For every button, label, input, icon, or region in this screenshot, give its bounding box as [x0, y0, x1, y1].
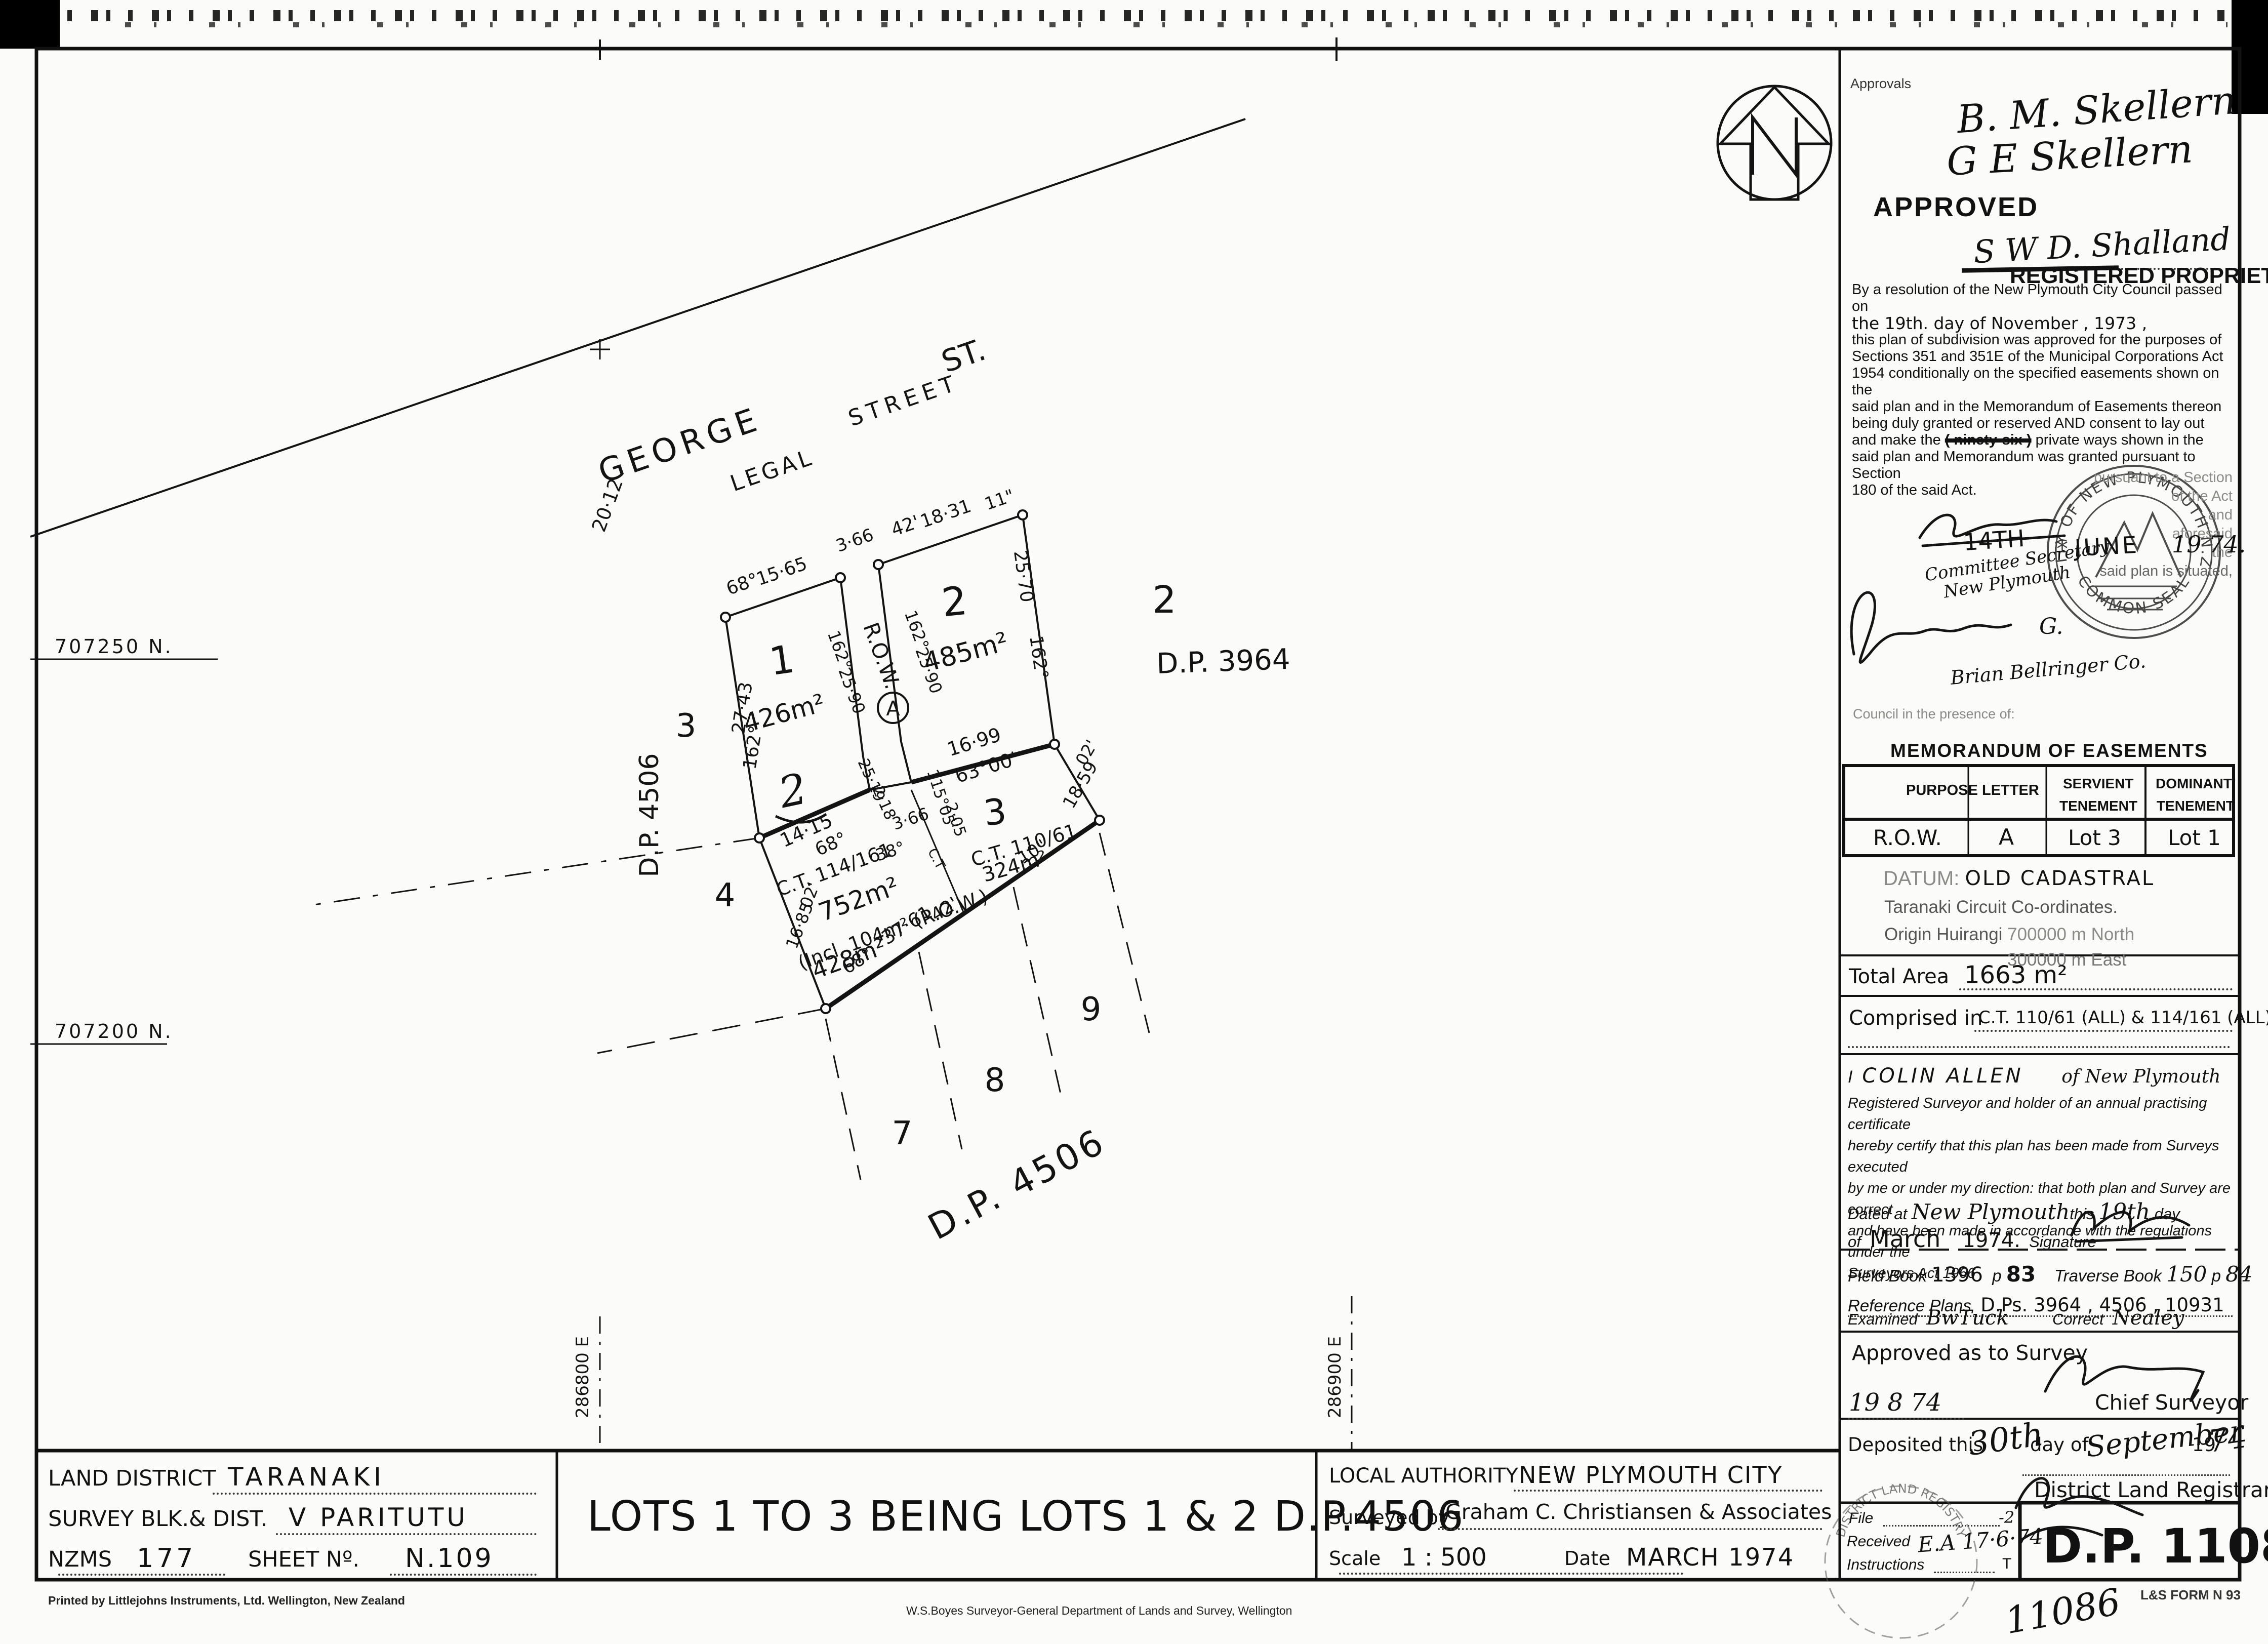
cert-month: March — [1870, 1225, 1940, 1253]
lot1-hand-2: 2 — [774, 764, 812, 818]
cert-dated-at: Dated at — [1848, 1205, 1907, 1223]
fb-p-label: p — [1992, 1266, 2001, 1285]
faint-f3: and — [2005, 506, 2233, 525]
district-land-registrar-label: District Land Registrar — [2034, 1477, 2268, 1502]
deposited-pre: Deposited this — [1848, 1434, 1983, 1456]
land-district-value: TARANAKI — [228, 1462, 385, 1492]
cert-month-line: of March 1974. Signature — [1848, 1225, 2096, 1253]
sheet-dots — [390, 1574, 537, 1576]
datum-origin-north: 700000 m North — [2007, 925, 2134, 944]
memorandum-title: MEMORANDUM OF EASEMENTS — [1890, 740, 2208, 761]
faint-f2: of the Act — [2005, 487, 2233, 506]
resolution-l5: 1954 conditionally on the specified ease… — [1852, 365, 2237, 398]
cert-year: 1974. — [1962, 1229, 2020, 1252]
correct-name: Nealey — [2113, 1306, 2184, 1330]
dim-front-sec: 11" — [982, 486, 1017, 514]
file-mark-2: -2 — [1999, 1508, 2014, 1527]
resolution-l8: and make the ( ninety-six ) private ways… — [1852, 432, 2237, 449]
deposited-year-script: 74 — [2206, 1419, 2249, 1460]
coord-e2: 286900 E — [1325, 1336, 1345, 1418]
cert-surveyor-name: COLIN ALLEN — [1862, 1064, 2023, 1088]
approvals-label: Approvals — [1850, 76, 1911, 92]
adj-lot4: 4 — [715, 877, 736, 914]
examined-line: Examined BwTuck Correct Nealey — [1848, 1306, 2184, 1330]
memo-h-dominant1: DOMINANT — [2156, 776, 2232, 792]
traverse-book-label: Traverse Book — [2054, 1266, 2162, 1285]
fb-p-value: 83 — [2006, 1262, 2036, 1287]
survey-blk-value: V PARITUTU — [289, 1503, 468, 1532]
street-width: 20·12 — [588, 475, 628, 535]
surveyed-by-value: Graham C. Christiansen & Associates — [1445, 1500, 1832, 1524]
lot2-area: 485m² — [920, 627, 1011, 678]
cert-i: I — [1848, 1067, 1852, 1087]
adj-dp3964-lot: 2 — [1152, 578, 1176, 622]
street-name-street: STREET — [845, 370, 962, 431]
resolution-paragraph: By a resolution of the New Plymouth City… — [1852, 282, 2237, 499]
local-authority-value: NEW PLYMOUTH CITY — [1519, 1461, 1783, 1489]
edgar-initial: G. — [2039, 614, 2063, 639]
date-label: Date — [1564, 1547, 1610, 1570]
resolution-l8b-struck: ( ninety-six ) — [1945, 432, 2032, 448]
cert-l1: Registered Surveyor and holder of an ann… — [1848, 1093, 2238, 1135]
approved-heading: APPROVED — [1873, 191, 2039, 223]
form-reference: L&S FORM N 93 — [2140, 1587, 2241, 1603]
datum-line2: Taranaki Circuit Co-ordinates. — [1884, 897, 2118, 917]
survey-approval-date: 19 8 74 — [1849, 1388, 1941, 1417]
total-area-value: 1663 m² — [1964, 961, 2067, 989]
cert-dated-line: Dated at New Plymouththis 19th day — [1848, 1199, 2180, 1225]
lot2-number: 2 — [940, 578, 969, 626]
datum-line1: DATUM: OLD CADASTRAL — [1883, 867, 2155, 890]
survey-blk-dots — [276, 1533, 537, 1535]
seal-date-year: 19 74. — [2172, 531, 2246, 558]
row-left-dist: 25·90 — [834, 665, 869, 716]
chief-surveyor-label: Chief Surveyor — [2095, 1390, 2248, 1415]
comprised-label: Comprised in — [1849, 1007, 1982, 1030]
comprised-value: C.T. 110/61 (ALL) & 114/161 (ALL) — [1978, 1008, 2268, 1028]
survey-blk-label: SURVEY BLK.& DIST. — [48, 1506, 267, 1532]
resolution-l8c: private ways shown in the — [2032, 432, 2204, 448]
resolution-l1: By a resolution of the New Plymouth City… — [1852, 282, 2237, 315]
coord-n2: 707200 N. — [55, 1020, 173, 1042]
scale-dots — [1339, 1573, 1683, 1575]
surveyed-by-label: Surveyed by — [1329, 1506, 1449, 1529]
datum-origin-label: Origin Huirangi — [1884, 925, 2002, 944]
traverse-book-value: 150 — [2166, 1262, 2207, 1287]
adj-lot9: 9 — [1081, 991, 1102, 1028]
memo-h-dominant2: TENEMENT — [2157, 798, 2235, 814]
resolution-l3: this plan of subdivision was approved fo… — [1852, 332, 2237, 348]
resolution-l8a: and make the — [1852, 432, 1945, 448]
survey-date-dots — [1848, 1418, 1964, 1420]
coord-n1: 707250 N. — [55, 635, 173, 658]
memo-h-servient1: SERVIENT — [2063, 776, 2134, 792]
cert-of: of — [1848, 1233, 1861, 1251]
cert-of-place: of New Plymouth — [2061, 1066, 2220, 1087]
cert-dated-place: New Plymouth — [1912, 1199, 2070, 1224]
total-area-dots — [1959, 988, 2233, 990]
north-arrow — [1718, 86, 1831, 199]
adj-lot8: 8 — [985, 1062, 1005, 1099]
date-value: MARCH 1974 — [1626, 1543, 1794, 1572]
dlr-dots — [2022, 1474, 2230, 1476]
instructions-dots — [1934, 1572, 1995, 1573]
cert-name-line: I COLIN ALLEN of New Plymouth — [1848, 1064, 2220, 1088]
tb-p-value: 84 — [2225, 1262, 2252, 1287]
cert-day-label: day — [2155, 1205, 2180, 1223]
resolution-l4: Sections 351 and 351E of the Municipal C… — [1852, 348, 2237, 365]
street-name-legal: LEGAL — [727, 444, 817, 497]
received-label: Received — [1847, 1533, 1910, 1550]
file-dots — [1883, 1525, 2000, 1527]
memo-row-dominant: Lot 1 — [2168, 825, 2221, 850]
dim-front-bearing2: 42' — [888, 512, 922, 541]
datum-value: OLD CADASTRAL — [1965, 867, 2155, 890]
file-label: File — [1849, 1510, 1873, 1527]
coord-e1: 286800 E — [573, 1336, 593, 1418]
cert-l2: hereby certify that this plan has been m… — [1848, 1135, 2238, 1178]
lot2-east-bearing: 162° — [1025, 634, 1052, 681]
memo-h-letter: LETTER — [1982, 782, 2039, 799]
approved-survey-title: Approved as to Survey — [1852, 1341, 2088, 1365]
sheet-value: N.109 — [405, 1543, 494, 1574]
presence-caption: Council in the presence of: — [1853, 706, 2015, 722]
examined-label: Examined — [1848, 1310, 1918, 1328]
instructions-label: Instructions — [1847, 1556, 1924, 1574]
nzms-value: 177 — [137, 1543, 196, 1574]
land-district-label: LAND DISTRICT — [48, 1466, 216, 1491]
examined-name: BwTuck — [1926, 1306, 2009, 1330]
lot1-number: 1 — [766, 636, 797, 684]
signature-town-clerk — [1851, 592, 2011, 662]
land-district-dots — [213, 1493, 537, 1495]
memo-row-letter: A — [1999, 824, 2014, 850]
file-mark-t: T — [2002, 1555, 2011, 1573]
adj-dp3964: D.P. 3964 — [1156, 643, 1290, 680]
comprised-dots — [1974, 1030, 2233, 1032]
total-area-label: Total Area — [1849, 965, 1949, 988]
cert-paragraph: Registered Surveyor and holder of an ann… — [1848, 1093, 2238, 1284]
datum-line3: Origin Huirangi 700000 m North — [1884, 925, 2134, 945]
dp-number: D.P. 11086 — [2043, 1519, 2268, 1574]
tb-p-label: p — [2212, 1266, 2221, 1285]
easement-letter: A — [886, 697, 900, 720]
adj-dp4506-bottom: D.P. 4506 — [921, 1120, 1113, 1248]
correct-label: Correct — [2052, 1310, 2104, 1328]
memo-row-purpose: R.O.W. — [1873, 825, 1942, 850]
field-book-value: 1396 — [1931, 1263, 1983, 1287]
lot3-number: 3 — [982, 790, 1008, 834]
comprised-dots2 — [1848, 1046, 2230, 1048]
nzms-label: NZMS — [48, 1547, 112, 1572]
adj-dp4506-side: D.P. 4506 — [634, 753, 665, 877]
resolution-l7: being duly granted or reserved AND conse… — [1852, 415, 2237, 432]
scale-value: 1 : 500 — [1401, 1543, 1487, 1572]
row-label: R.O.W. — [858, 619, 905, 692]
field-book-line: Field Book 1396 p 83 Traverse Book 150 p… — [1848, 1262, 2253, 1287]
deposited-mid: day of — [2030, 1434, 2088, 1456]
cert-signature-label: Signature — [2029, 1233, 2096, 1251]
dim-row-width-top: 3·66 — [833, 525, 876, 556]
memo-h-servient2: TENEMENT — [2059, 798, 2137, 814]
surveyed-by-dots — [1438, 1528, 1822, 1530]
local-authority-dots — [1514, 1490, 1822, 1492]
printer-note: Printed by Littlejohns Instruments, Ltd.… — [48, 1594, 405, 1608]
sheet-label: SHEET Nº. — [248, 1547, 359, 1572]
adj-lot3: 3 — [676, 707, 697, 745]
cert-this: this — [2070, 1205, 2094, 1223]
nzms-dots — [58, 1574, 225, 1576]
resolution-l2: the 19th. day of November , 1973 , — [1852, 315, 2237, 332]
lot3-east-dist: 18·59 — [1059, 758, 1102, 812]
field-book-label: Field Book — [1848, 1266, 1927, 1285]
dim-front-dist1: 15·65 — [754, 553, 810, 590]
scale-label: Scale — [1329, 1547, 1381, 1570]
cert-day: 19th — [2098, 1199, 2150, 1225]
survey-plan-sheet: A GEORGE LEGAL STREET ST. 20·12 68° 15·6… — [0, 0, 2268, 1644]
dim-front-dist2: 18·31 — [918, 496, 974, 532]
local-authority-label: LOCAL AUTHORITY — [1329, 1464, 1518, 1488]
memo-row-servient: Lot 3 — [2068, 825, 2121, 850]
faint-f1: pursuant to a Section — [2005, 468, 2233, 487]
surveyor-general-note: W.S.Boyes Surveyor-General Department of… — [906, 1604, 1292, 1618]
resolution-l6: said plan and in the Memorandum of Easem… — [1852, 398, 2237, 415]
datum-label: DATUM: — [1883, 867, 1959, 890]
lot2-east-dist: 25·70 — [1009, 549, 1037, 604]
adj-lot7: 7 — [892, 1115, 913, 1152]
